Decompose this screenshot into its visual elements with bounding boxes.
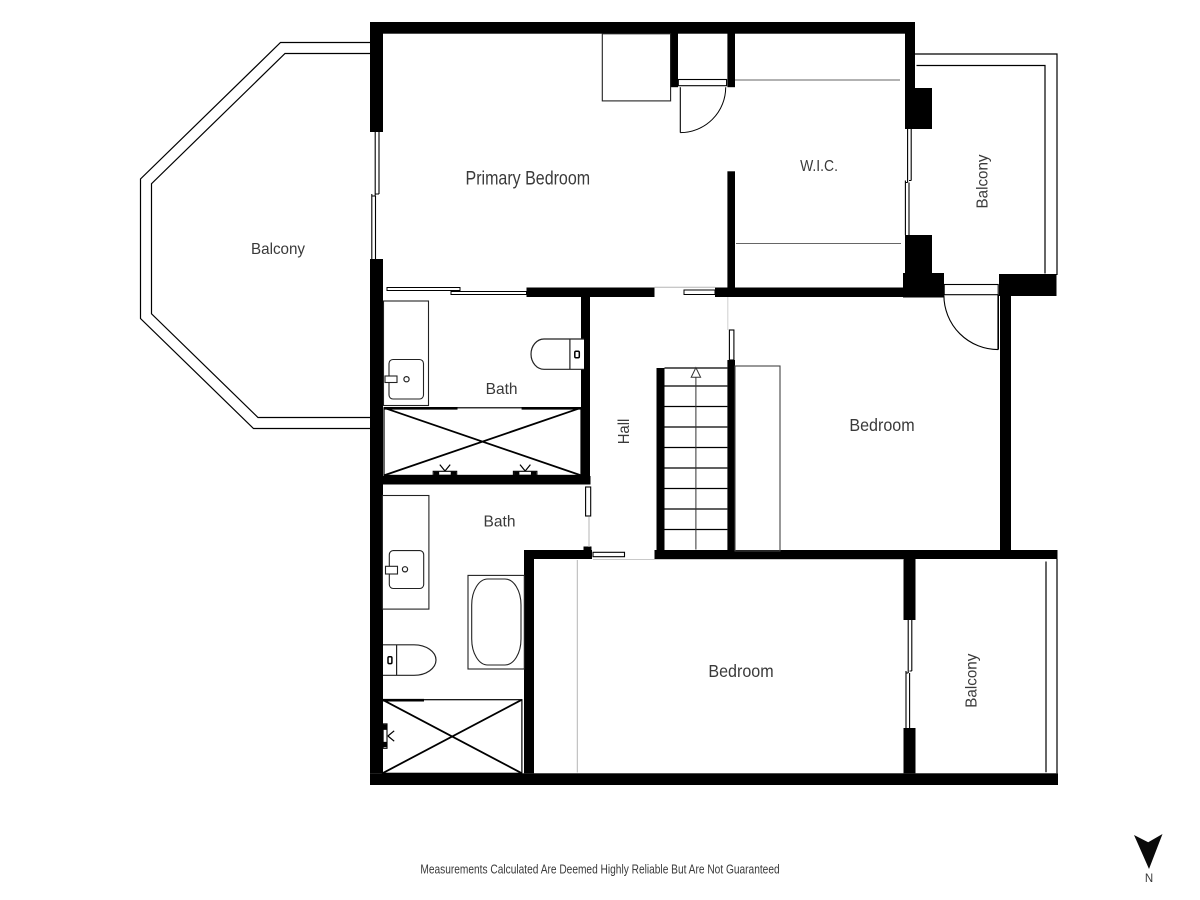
svg-text:Primary Bedroom: Primary Bedroom: [466, 167, 591, 189]
svg-text:Measurements Calculated Are De: Measurements Calculated Are Deemed Highl…: [420, 862, 779, 876]
svg-text:Bath: Bath: [484, 513, 516, 530]
svg-text:Balcony: Balcony: [251, 241, 305, 258]
svg-text:Bath: Bath: [486, 381, 518, 398]
svg-text:Balcony: Balcony: [963, 653, 980, 707]
svg-text:N: N: [1145, 873, 1153, 885]
svg-text:W.I.C.: W.I.C.: [800, 157, 838, 175]
svg-text:Bedroom: Bedroom: [708, 661, 773, 681]
svg-text:Balcony: Balcony: [974, 154, 991, 208]
svg-text:Hall: Hall: [616, 419, 634, 445]
svg-text:Bedroom: Bedroom: [849, 415, 914, 435]
